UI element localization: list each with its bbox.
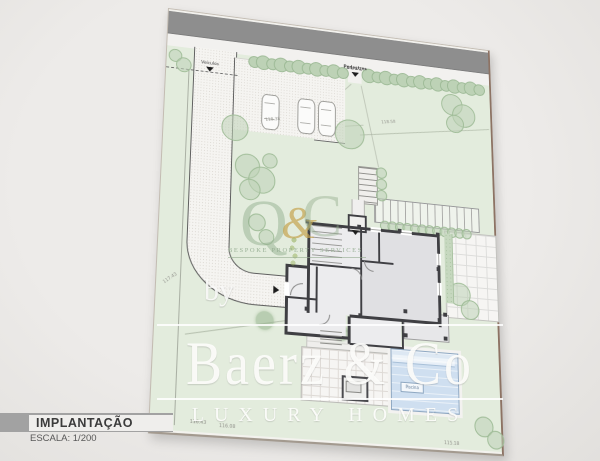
southwest-steps xyxy=(320,330,342,346)
house-wall xyxy=(285,264,288,282)
window xyxy=(436,254,440,266)
elevation-label: 115.18 xyxy=(444,441,459,447)
green-island xyxy=(228,129,314,279)
column-square xyxy=(437,267,441,271)
column-square xyxy=(436,233,440,237)
car-windshield xyxy=(300,106,310,108)
interior-wall xyxy=(378,232,380,262)
tree-icon xyxy=(258,228,274,245)
car-rear-window xyxy=(300,122,310,124)
entry-door-opening xyxy=(284,283,289,296)
house-wall xyxy=(348,316,350,344)
car-icon xyxy=(318,100,336,137)
car-icon xyxy=(261,94,280,131)
tree-icon xyxy=(376,189,387,202)
elevation-label: 116.08 xyxy=(219,424,236,431)
column-square xyxy=(398,229,402,233)
column-square xyxy=(305,307,309,311)
north-entrance-arrow xyxy=(352,230,360,236)
column-square xyxy=(357,225,361,229)
window xyxy=(371,227,381,232)
drawing-title: IMPLANTAÇÃO xyxy=(36,416,133,430)
column-square xyxy=(403,309,407,313)
car-windshield xyxy=(321,109,331,111)
column-square xyxy=(306,219,310,223)
pool-label: Piscina xyxy=(400,382,423,394)
patio-hedge-strip xyxy=(444,233,454,303)
garden-structure-inner xyxy=(346,381,362,394)
elevation-label: 118.38 xyxy=(265,117,281,122)
pergola-bush-icon xyxy=(461,228,471,239)
column-square xyxy=(443,313,447,317)
vehicle-entrance-marker xyxy=(206,67,214,73)
car-windshield xyxy=(264,102,274,104)
stairwell xyxy=(312,225,342,267)
site-plan-sheet: Piscina Veículos Pedestres 117.43118.381… xyxy=(148,8,504,456)
column-square xyxy=(358,313,362,317)
car-icon xyxy=(297,98,315,135)
tree-icon xyxy=(376,167,387,179)
column-square xyxy=(404,333,408,337)
window xyxy=(437,283,441,296)
car-rear-window xyxy=(321,125,331,127)
elevation-label: 118.58 xyxy=(381,120,396,125)
main-entrance-arrow xyxy=(273,286,279,295)
living-room-floor xyxy=(362,230,439,322)
tree-icon xyxy=(376,178,387,190)
tree-icon xyxy=(255,310,273,330)
elevation-label: 116.43 xyxy=(190,420,207,427)
drawing-scale: ESCALA: 1/200 xyxy=(30,433,97,444)
column-square xyxy=(444,336,448,340)
column-square xyxy=(438,318,442,322)
pedestrian-entrance-marker xyxy=(352,72,359,77)
